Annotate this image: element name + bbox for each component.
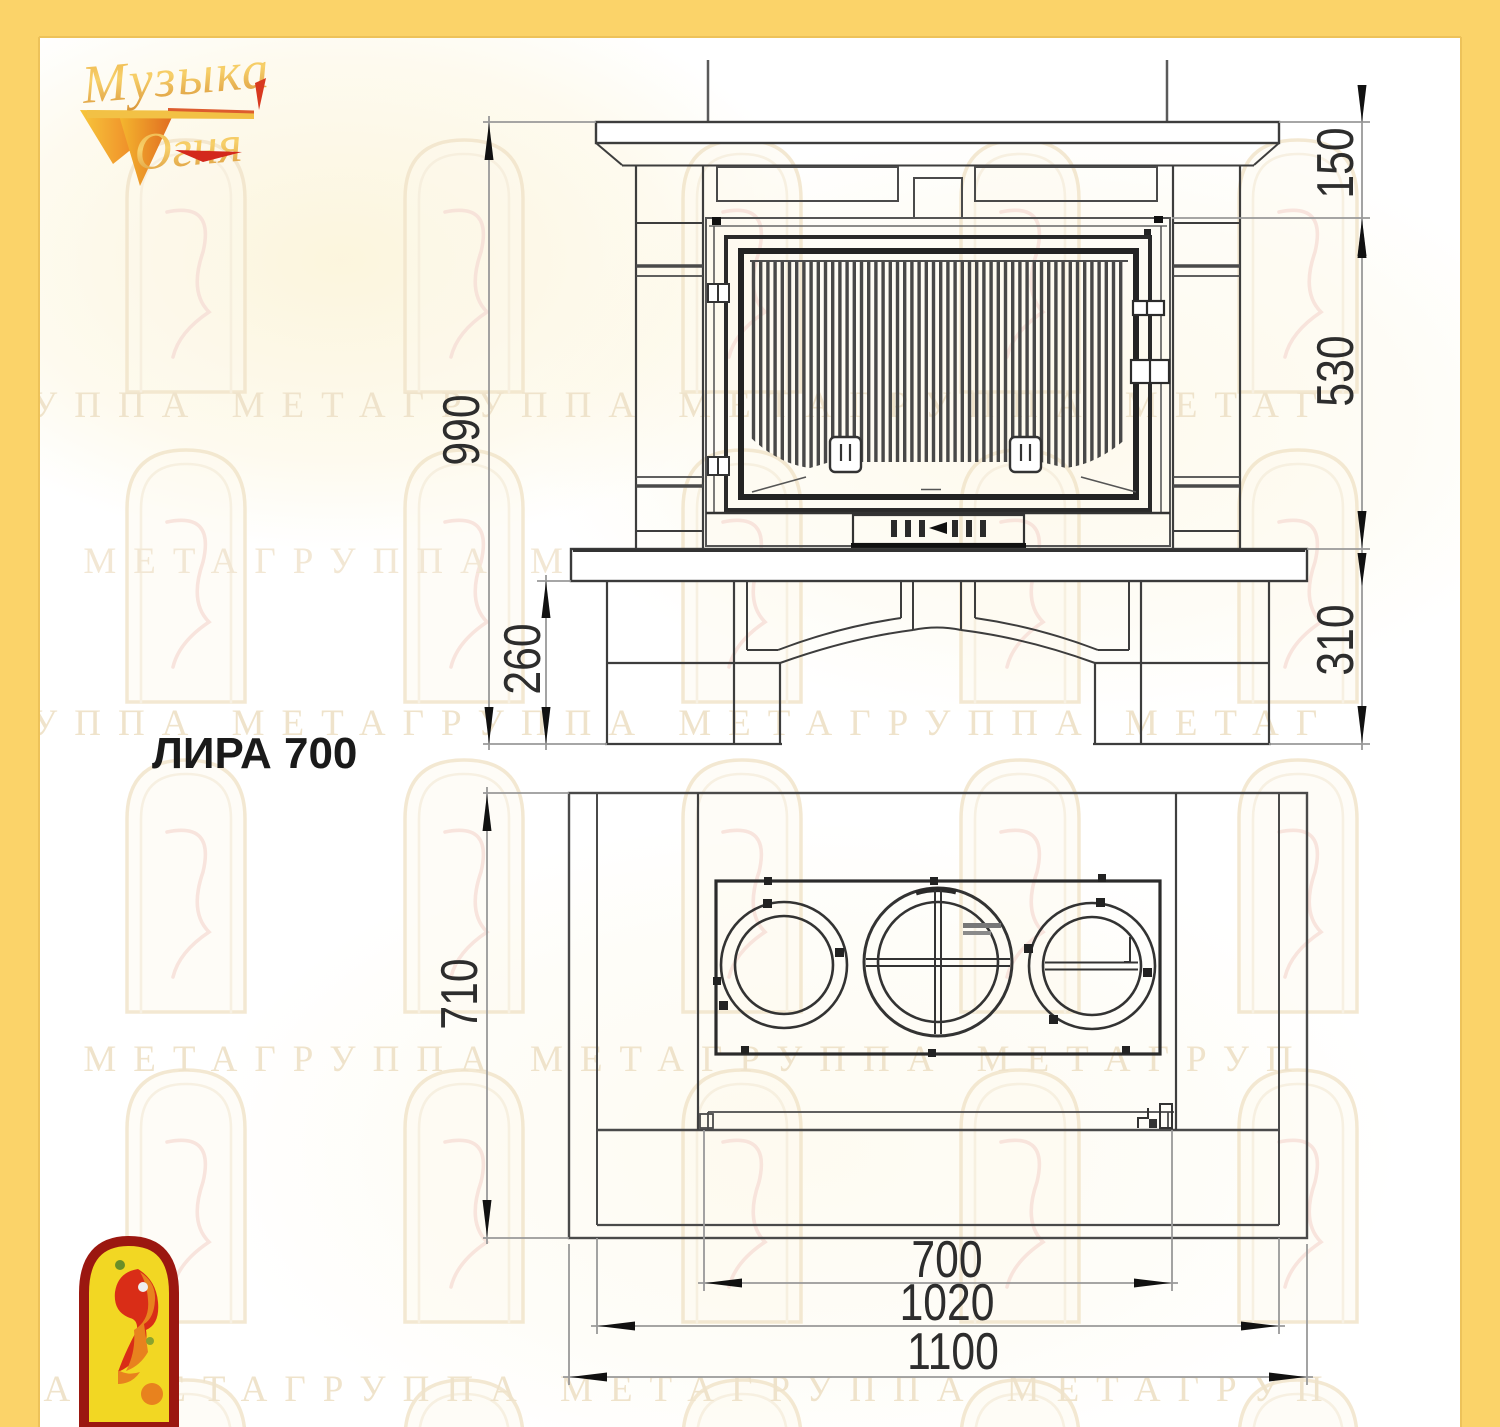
svg-text:ППА МЕТАГРУППА МЕТАГРУППА МЕТА: ППА МЕТАГРУППА МЕТАГРУППА МЕТАГРУП <box>0 1369 1340 1410</box>
svg-text:260: 260 <box>494 623 552 694</box>
svg-text:990: 990 <box>433 394 491 465</box>
svg-text:530: 530 <box>1307 335 1365 406</box>
svg-text:ЛИРА 700: ЛИРА 700 <box>152 729 357 778</box>
svg-text:1100: 1100 <box>907 1323 999 1381</box>
svg-text:310: 310 <box>1307 604 1365 675</box>
svg-text:ППА МЕТАГРУППА МЕТАГРУППА МЕТА: ППА МЕТАГРУППА МЕТАГРУППА МЕТАГРУП <box>0 1039 1310 1080</box>
svg-text:Огня: Огня <box>132 116 244 182</box>
svg-text:150: 150 <box>1307 127 1365 198</box>
svg-text:710: 710 <box>431 958 489 1029</box>
